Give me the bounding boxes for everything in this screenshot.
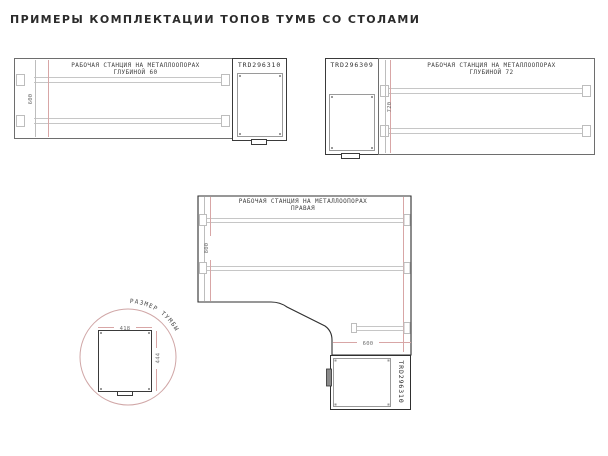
station-label-line2: ГЛУБИНОЙ 72 (394, 69, 589, 76)
cabinet-trd296310-box: TRD296310 (232, 58, 287, 141)
cabinet-code-label: TRD296310 (397, 360, 405, 403)
cam-mark (331, 96, 333, 98)
rail-connector (404, 323, 410, 334)
station-label: РАБОЧАЯ СТАНЦИЯ НА МЕТАЛЛООПОРАХ ГЛУБИНО… (394, 62, 589, 76)
rail-connector (16, 74, 25, 86)
cam-mark (371, 96, 373, 98)
station-label-line1: РАБОЧАЯ СТАНЦИЯ НА МЕТАЛЛООПОРАХ (239, 198, 367, 205)
cam-mark (335, 360, 337, 362)
cabinet-size-detail: РАЗМЕР ТУМБЫ 418 444 (68, 291, 200, 413)
desk-side-panel-line (35, 60, 36, 137)
rail-connector (200, 263, 207, 274)
station-label-line2: ПРАВАЯ (291, 205, 315, 212)
cam-mark (388, 404, 390, 406)
cam-mark (279, 133, 281, 135)
cam-mark (239, 133, 241, 135)
depth-dimension-value: 720 (386, 96, 394, 118)
rail-connector (404, 215, 410, 226)
station-label-line1: РАБОЧАЯ СТАНЦИЯ НА МЕТАЛЛООПОРАХ (40, 62, 231, 69)
cabinet-foot-tab (251, 139, 267, 145)
cam-mark (100, 332, 102, 334)
cabinet-trd296309-box: TRD296309 (325, 58, 379, 155)
desk-rail (34, 118, 226, 124)
depth-dimension-value: 444 (156, 352, 162, 363)
cabinet-door-panel (237, 73, 283, 137)
rail-connector (352, 324, 357, 333)
rail-connector (404, 263, 410, 274)
desk-rail (386, 88, 586, 94)
cabinet-foot-tab (118, 392, 133, 396)
height-dimension-value: 800 (204, 243, 210, 254)
cam-mark (335, 404, 337, 406)
cabinet-foot-tab (341, 153, 360, 159)
cam-mark (388, 360, 390, 362)
width-dimension-value: 600 (363, 341, 374, 347)
cabinet-handle-tab (327, 369, 332, 386)
cam-mark (239, 75, 241, 77)
cabinet-door-panel (329, 94, 375, 151)
station-label: РАБОЧАЯ СТАНЦИЯ НА МЕТАЛЛООПОРАХ ГЛУБИНО… (40, 62, 231, 76)
cam-mark (148, 332, 150, 334)
cabinet-top-outline (99, 331, 152, 392)
page-title: ПРИМЕРЫ КОМПЛЕКТАЦИИ ТОПОВ ТУМБ СО СТОЛА… (10, 13, 420, 26)
cabinet-door-panel (334, 359, 391, 407)
cam-mark (371, 147, 373, 149)
width-dimension-value: 418 (120, 326, 131, 332)
workstation-72-desk-outline: 720 РАБОЧАЯ СТАНЦИЯ НА МЕТАЛЛООПОРАХ ГЛУ… (378, 58, 595, 155)
cam-mark (279, 75, 281, 77)
workstation-60-desk-outline: 600 РАБОЧАЯ СТАНЦИЯ НА МЕТАЛЛООПОРАХ ГЛУ… (14, 58, 234, 139)
station-label-line2: ГЛУБИНОЙ 60 (40, 69, 231, 76)
l-desk-outline (198, 196, 411, 355)
cam-mark (100, 388, 102, 390)
desk-rail (34, 77, 226, 83)
cabinet-code-label: TRD296310 (233, 61, 286, 69)
cabinet-code-label: TRD296309 (326, 61, 378, 69)
cam-mark (331, 147, 333, 149)
cam-mark (148, 388, 150, 390)
depth-dimension-value: 600 (27, 88, 35, 110)
station-label-line1: РАБОЧАЯ СТАНЦИЯ НА МЕТАЛЛООПОРАХ (394, 62, 589, 69)
rail-connector (16, 115, 25, 127)
desk-rail (386, 128, 586, 134)
rail-connector (221, 115, 230, 127)
rail-connector (200, 215, 207, 226)
rail-connector (582, 125, 591, 137)
l-workstation-drawing: 800 600 РАБОЧАЯ СТАНЦИЯ НА МЕТАЛЛООПОРАХ… (190, 188, 420, 420)
rail-connector (582, 85, 591, 97)
drawing-sheet: ПРИМЕРЫ КОМПЛЕКТАЦИИ ТОПОВ ТУМБ СО СТОЛА… (0, 0, 608, 456)
